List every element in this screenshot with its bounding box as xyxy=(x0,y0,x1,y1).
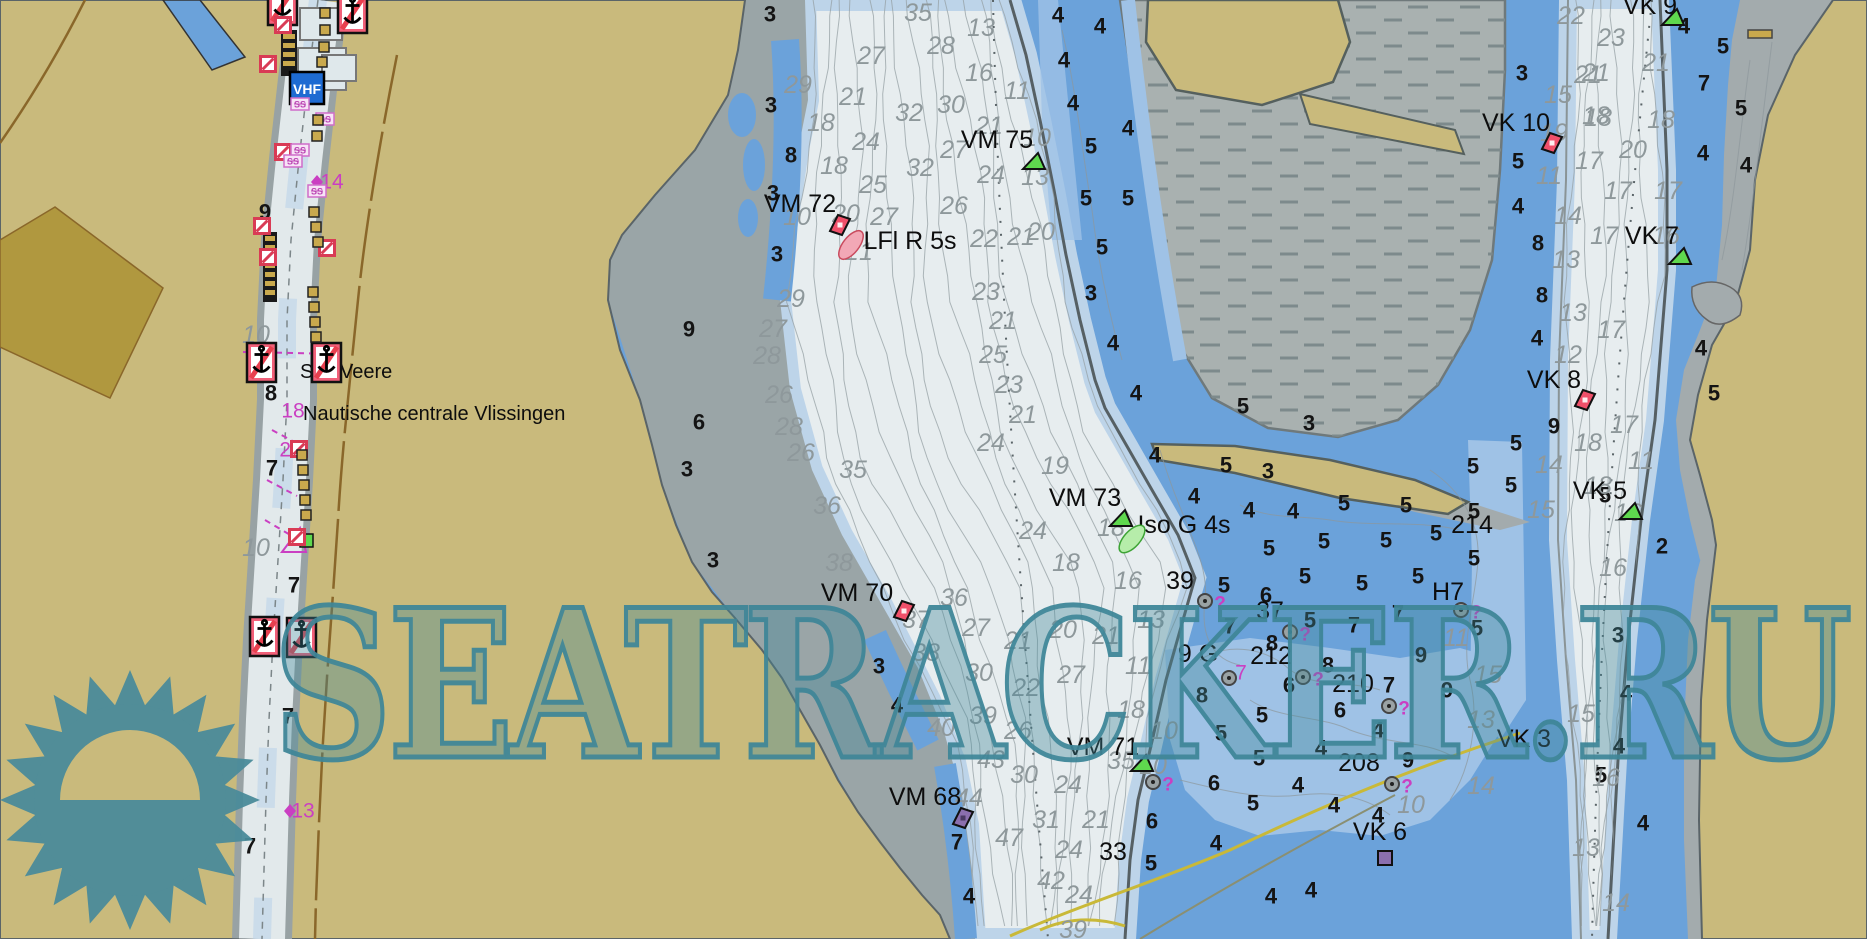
sounding-gray: 11 xyxy=(1536,162,1562,190)
sounding-gray: 21 xyxy=(988,307,1017,335)
sounding-black: 4 xyxy=(1130,381,1143,406)
sounding-black: 8 xyxy=(785,143,797,168)
sounding-gray: 23 xyxy=(1596,24,1625,52)
buoy-purple-square-icon[interactable] xyxy=(1378,851,1392,865)
sounding-gray: 13 xyxy=(1552,246,1580,274)
beacon-square-icon xyxy=(312,131,322,141)
sounding-black: 7 xyxy=(266,456,278,481)
beacon-square-icon xyxy=(313,115,323,125)
beacon-square-icon xyxy=(320,25,330,35)
sounding-black: 5 xyxy=(1400,493,1412,518)
sounding-black: 5 xyxy=(1505,473,1517,498)
sounding-gray: 35 xyxy=(904,0,932,27)
sounding-black: 8 xyxy=(1536,283,1548,308)
sounding-black: 4 xyxy=(1697,141,1710,166)
sounding-black: 5 xyxy=(1467,454,1479,479)
sounding-gray: 47 xyxy=(995,824,1024,852)
sounding-black: 3 xyxy=(771,242,783,267)
sounding-gray: 13 xyxy=(1559,299,1587,327)
sounding-black: 4 xyxy=(1210,831,1223,856)
sounding-gray: 42 xyxy=(1037,867,1065,895)
nav-label[interactable]: LFl R 5s xyxy=(863,227,956,255)
nav-label[interactable]: VK 8 xyxy=(1527,366,1581,394)
sounding-black: 3 xyxy=(1516,61,1528,86)
sounding-black: 4 xyxy=(1305,878,1318,903)
no-anchoring-sign[interactable] xyxy=(312,343,341,382)
sounding-gray: 29 xyxy=(776,285,805,313)
sounding-black: 4 xyxy=(1265,884,1278,909)
sounding-black: 5 xyxy=(1085,134,1097,159)
sounding-black: 5 xyxy=(1220,453,1232,478)
beacon-square-icon xyxy=(313,237,323,247)
sounding-black: 5 xyxy=(1263,536,1275,561)
sounding-black: 5 xyxy=(1080,186,1092,211)
beacon-square-icon xyxy=(310,317,320,327)
sounding-black: 4 xyxy=(1058,48,1071,73)
sounding-black: 3 xyxy=(681,457,693,482)
sounding-gray: 11 xyxy=(1004,77,1030,105)
sounding-gray: 24 xyxy=(851,128,880,156)
sounding-gray: 24 xyxy=(1054,836,1083,864)
sounding-gray: 15 xyxy=(1527,496,1555,524)
sounding-black: 4 xyxy=(963,884,976,909)
sounding-black: 5 xyxy=(1096,235,1108,260)
sounding-gray: 35 xyxy=(839,456,867,484)
sounding-gray: 25 xyxy=(978,341,1007,369)
beacon-square-icon xyxy=(299,480,309,490)
sounding-black: 5 xyxy=(1318,529,1330,554)
sounding-black: 4 xyxy=(1067,91,1080,116)
beacon-square-icon xyxy=(298,465,308,475)
sounding-black: 4 xyxy=(1149,443,1162,468)
sounding-black: 9 xyxy=(683,317,695,342)
sounding-black: 4 xyxy=(1695,336,1708,361)
sounding-gray: 17 xyxy=(1654,177,1683,205)
sounding-gray: 23 xyxy=(971,278,1000,306)
beacon-square-icon xyxy=(300,495,310,505)
sounding-gray: 18 xyxy=(1584,104,1612,132)
sounding-black: 4 xyxy=(1122,116,1135,141)
sounding-gray: 25 xyxy=(858,171,887,199)
sounding-black: 7 xyxy=(1698,71,1710,96)
sounding-black: 7 xyxy=(951,830,963,855)
sounding-black: 5 xyxy=(1430,521,1442,546)
sounding-gray: 24 xyxy=(976,161,1005,189)
sounding-gray: 17 xyxy=(1610,411,1639,439)
beacon-square-icon xyxy=(309,207,319,217)
sounding-black: 4 xyxy=(1094,14,1107,39)
ss-mark: SS xyxy=(291,98,309,110)
nav-label[interactable]: VM 75 xyxy=(961,126,1033,154)
sounding-black: 9 xyxy=(1548,414,1560,439)
sounding-black: 4 xyxy=(1512,194,1525,219)
sounding-black: 4 xyxy=(1188,484,1201,509)
sounding-black: 4 xyxy=(1531,326,1544,351)
sounding-black: 5 xyxy=(1145,851,1157,876)
sounding-gray: 17 xyxy=(1597,316,1626,344)
sounding-gray: 21 xyxy=(1006,223,1035,251)
sounding-black: 3 xyxy=(1085,281,1097,306)
sounding-gray: 18 xyxy=(820,152,848,180)
beacon-square-icon xyxy=(311,222,321,232)
nav-label[interactable]: VM 73 xyxy=(1049,484,1121,512)
sounding-black: 5 xyxy=(1510,431,1522,456)
restriction-sign[interactable] xyxy=(290,530,305,545)
nav-label[interactable]: 33 xyxy=(1099,838,1127,866)
restriction-sign[interactable] xyxy=(261,250,276,265)
restriction-sign[interactable] xyxy=(276,18,291,33)
sounding-black: 2 xyxy=(1656,534,1668,559)
sounding-black: 4 xyxy=(1052,3,1065,28)
sounding-gray: 24 xyxy=(976,429,1005,457)
nav-label[interactable]: Iso G 4s xyxy=(1137,511,1230,539)
sounding-gray: 17 xyxy=(1604,177,1633,205)
sounding-gray: 28 xyxy=(774,413,803,441)
sounding-gray: 11 xyxy=(1628,447,1654,475)
sounding-black: 5 xyxy=(1380,528,1392,553)
sounding-black: 5 xyxy=(1338,491,1350,516)
sounding-gray: 28 xyxy=(752,342,781,370)
chart-svg[interactable]: VHF 987777338339633347444444555534445353… xyxy=(0,0,1867,939)
sounding-gray: 10 xyxy=(242,534,270,562)
sounding-gray: 14 xyxy=(1602,889,1630,917)
sounding-black: 4 xyxy=(1740,153,1753,178)
sounding-gray: 32 xyxy=(906,154,934,182)
sounding-gray: 22 xyxy=(1556,2,1585,30)
sounding-black: 5 xyxy=(1512,149,1524,174)
sounding-black: 3 xyxy=(765,93,777,118)
sounding-black: 4 xyxy=(1637,811,1650,836)
sounding-gray: 24 xyxy=(1018,517,1047,545)
sounding-black: 8 xyxy=(1532,231,1544,256)
sounding-black: 8 xyxy=(265,381,277,406)
sounding-black: 5 xyxy=(1708,381,1720,406)
sounding-gray: 21 xyxy=(1581,59,1610,87)
sounding-gray: 26 xyxy=(786,439,815,467)
sounding-black: 5 xyxy=(1122,186,1134,211)
beacon-square-icon xyxy=(319,42,329,52)
sounding-gray: 17 xyxy=(1575,147,1604,175)
sounding-gray: 26 xyxy=(764,381,793,409)
sounding-gray: 29 xyxy=(783,71,812,99)
sounding-black: 5 xyxy=(1735,96,1747,121)
sounding-black: 4 xyxy=(1243,498,1256,523)
sounding-gray: 23 xyxy=(994,371,1023,399)
sounding-gray: 20 xyxy=(1618,136,1647,164)
vhf-label: VHF xyxy=(293,81,321,97)
sounding-gray: 19 xyxy=(1041,452,1069,480)
sounding-gray: 22 xyxy=(969,225,998,253)
sounding-gray: 21 xyxy=(1081,806,1110,834)
sounding-gray: 18 xyxy=(1647,106,1675,134)
sounding-gray: 36 xyxy=(813,492,841,520)
beacon-square-icon xyxy=(311,332,321,342)
sounding-gray: 16 xyxy=(965,59,993,87)
sounding-black: 3 xyxy=(764,2,776,27)
sounding-gray: 28 xyxy=(926,32,955,60)
sounding-gray: 13 xyxy=(1572,834,1600,862)
beacon-square-icon xyxy=(317,57,327,67)
magenta-number: 18 xyxy=(281,400,304,423)
nav-label[interactable]: VK 5 xyxy=(1573,477,1627,505)
place-label: Nautische centrale Vlissingen xyxy=(303,403,565,425)
sounding-gray: 18 xyxy=(807,109,835,137)
sounding-gray: 17 xyxy=(1590,222,1619,250)
sounding-black: 3 xyxy=(1303,411,1315,436)
sounding-gray: 26 xyxy=(939,192,968,220)
nav-label[interactable]: VM 72 xyxy=(764,190,836,218)
beacon-square-icon xyxy=(301,510,311,520)
sounding-gray: 21 xyxy=(1008,401,1037,429)
ss-mark: SS xyxy=(308,185,326,197)
ss-mark: SS xyxy=(291,144,309,156)
restriction-sign[interactable] xyxy=(255,219,270,234)
beacon-square-icon xyxy=(308,287,318,297)
sounding-gray: 30 xyxy=(937,91,965,119)
beacon-square-icon xyxy=(320,8,330,18)
sounding-black: 5 xyxy=(1717,34,1729,59)
pier-icon xyxy=(1748,30,1772,38)
sounding-gray: 27 xyxy=(856,42,886,70)
sounding-black: 3 xyxy=(1262,459,1274,484)
nav-label[interactable]: 214 xyxy=(1451,511,1493,539)
watermark-text: SEATRACKER.RU xyxy=(273,566,1850,806)
nav-label[interactable]: VK 6 xyxy=(1353,818,1407,846)
sounding-gray: 24 xyxy=(1064,881,1093,909)
restriction-sign[interactable] xyxy=(261,57,276,72)
sounding-gray: 15 xyxy=(1544,81,1572,109)
sounding-gray: 13 xyxy=(967,14,995,42)
sounding-gray: 31 xyxy=(1032,806,1060,834)
chart-canvas[interactable]: VHF 987777338339633347444444555534445353… xyxy=(0,0,1867,939)
sounding-black: 5 xyxy=(1237,394,1249,419)
sounding-gray: 12 xyxy=(1554,341,1582,369)
nav-label[interactable]: VK 10 xyxy=(1482,109,1550,137)
beacon-square-icon xyxy=(297,450,307,460)
sounding-gray: 18 xyxy=(1574,429,1602,457)
sounding-gray: 21 xyxy=(1641,49,1670,77)
nav-label[interactable]: VK 7 xyxy=(1625,222,1679,250)
ss-mark: SS xyxy=(284,155,302,167)
sounding-black: 4 xyxy=(1107,331,1120,356)
beacon-square-icon xyxy=(309,302,319,312)
sounding-gray: 14 xyxy=(1535,451,1563,479)
sounding-gray: 32 xyxy=(895,99,923,127)
sounding-black: 4 xyxy=(1287,499,1300,524)
sounding-black: 6 xyxy=(1146,809,1158,834)
sounding-gray: 14 xyxy=(1554,202,1582,230)
sounding-gray: 27 xyxy=(758,315,788,343)
no-anchoring-sign[interactable] xyxy=(247,343,276,382)
sounding-gray: 39 xyxy=(1059,916,1087,939)
sounding-black: 6 xyxy=(693,410,705,435)
sounding-gray: 21 xyxy=(838,83,867,111)
no-anchoring-sign[interactable] xyxy=(338,0,367,33)
